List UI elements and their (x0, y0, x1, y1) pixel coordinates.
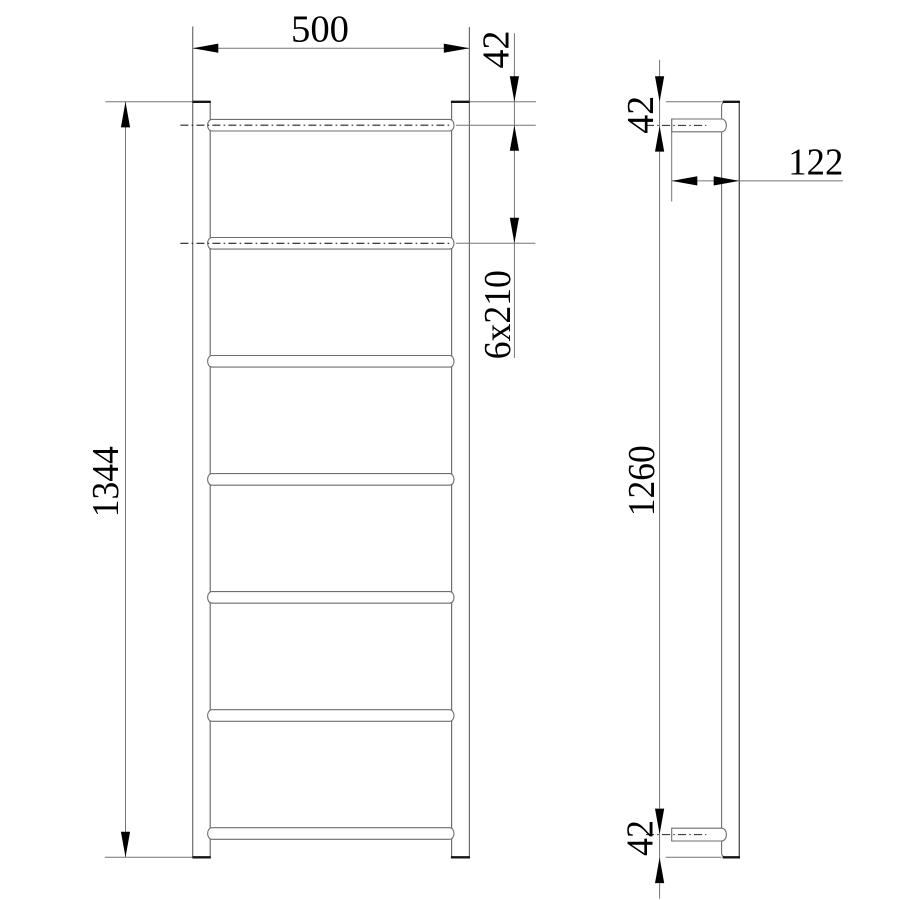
svg-text:122: 122 (788, 141, 843, 183)
svg-text:42: 42 (476, 31, 518, 69)
svg-text:1344: 1344 (85, 446, 127, 517)
svg-text:500: 500 (291, 8, 349, 50)
svg-text:6x210: 6x210 (477, 270, 519, 359)
svg-text:42: 42 (620, 96, 662, 134)
svg-text:1260: 1260 (621, 445, 663, 516)
svg-text:42: 42 (620, 820, 662, 856)
